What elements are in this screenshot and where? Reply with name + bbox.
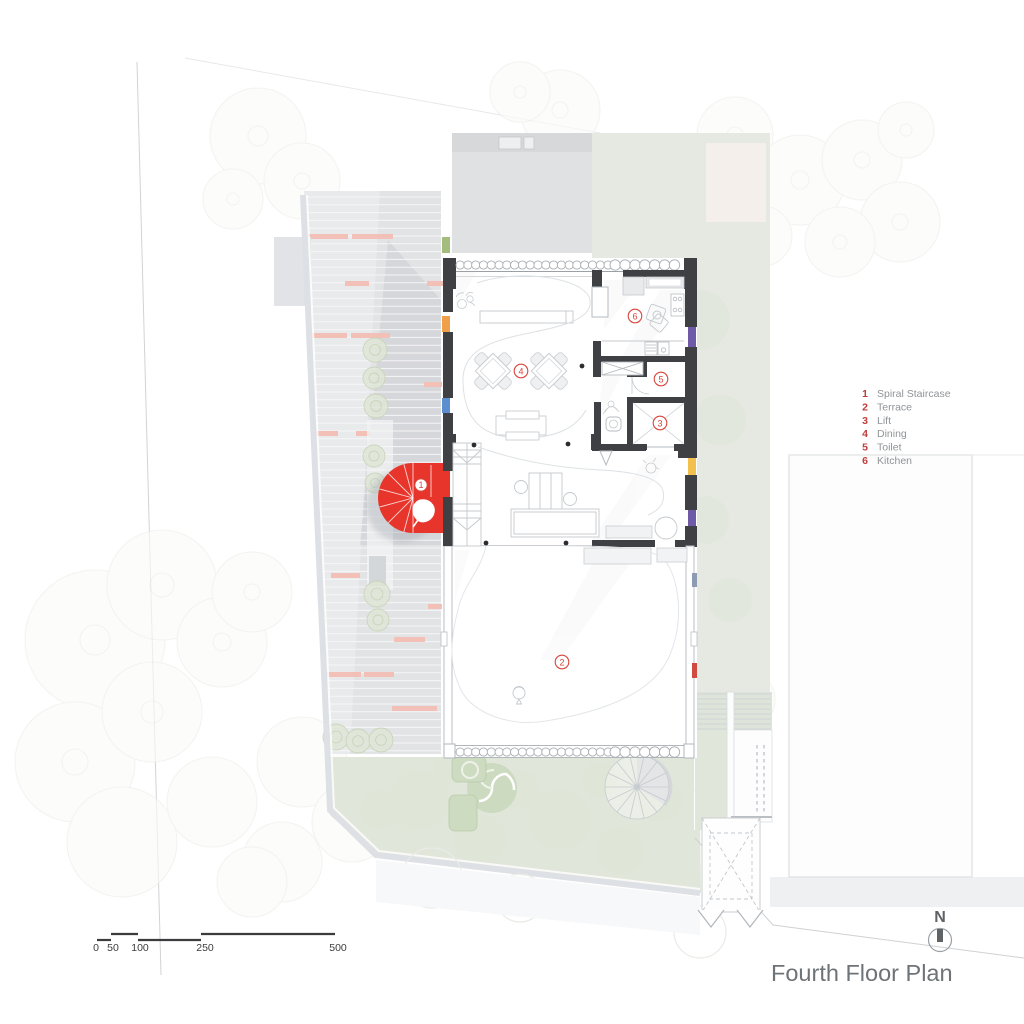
- svg-text:Fourth Floor Plan: Fourth Floor Plan: [771, 960, 953, 986]
- svg-text:4: 4: [518, 366, 523, 376]
- svg-text:5: 5: [862, 442, 868, 454]
- svg-text:1: 1: [418, 480, 423, 490]
- svg-text:6: 6: [632, 311, 637, 321]
- svg-text:Spiral Staircase: Spiral Staircase: [877, 388, 951, 400]
- svg-text:3: 3: [862, 415, 868, 427]
- svg-text:5: 5: [658, 374, 663, 384]
- svg-text:Kitchen: Kitchen: [877, 455, 912, 467]
- svg-text:0: 0: [93, 942, 99, 954]
- svg-text:Lift: Lift: [877, 415, 891, 427]
- svg-text:Dining: Dining: [877, 428, 907, 440]
- svg-text:500: 500: [329, 942, 347, 954]
- svg-text:2: 2: [559, 657, 564, 667]
- svg-text:100: 100: [131, 942, 149, 954]
- svg-text:N: N: [934, 909, 946, 926]
- svg-text:2: 2: [862, 401, 868, 413]
- svg-text:6: 6: [862, 455, 868, 467]
- svg-text:Terrace: Terrace: [877, 401, 912, 413]
- svg-text:250: 250: [196, 942, 214, 954]
- svg-text:50: 50: [107, 942, 119, 954]
- svg-text:3: 3: [657, 418, 662, 428]
- svg-text:1: 1: [862, 388, 868, 400]
- svg-text:Toilet: Toilet: [877, 442, 902, 454]
- svg-text:4: 4: [862, 428, 868, 440]
